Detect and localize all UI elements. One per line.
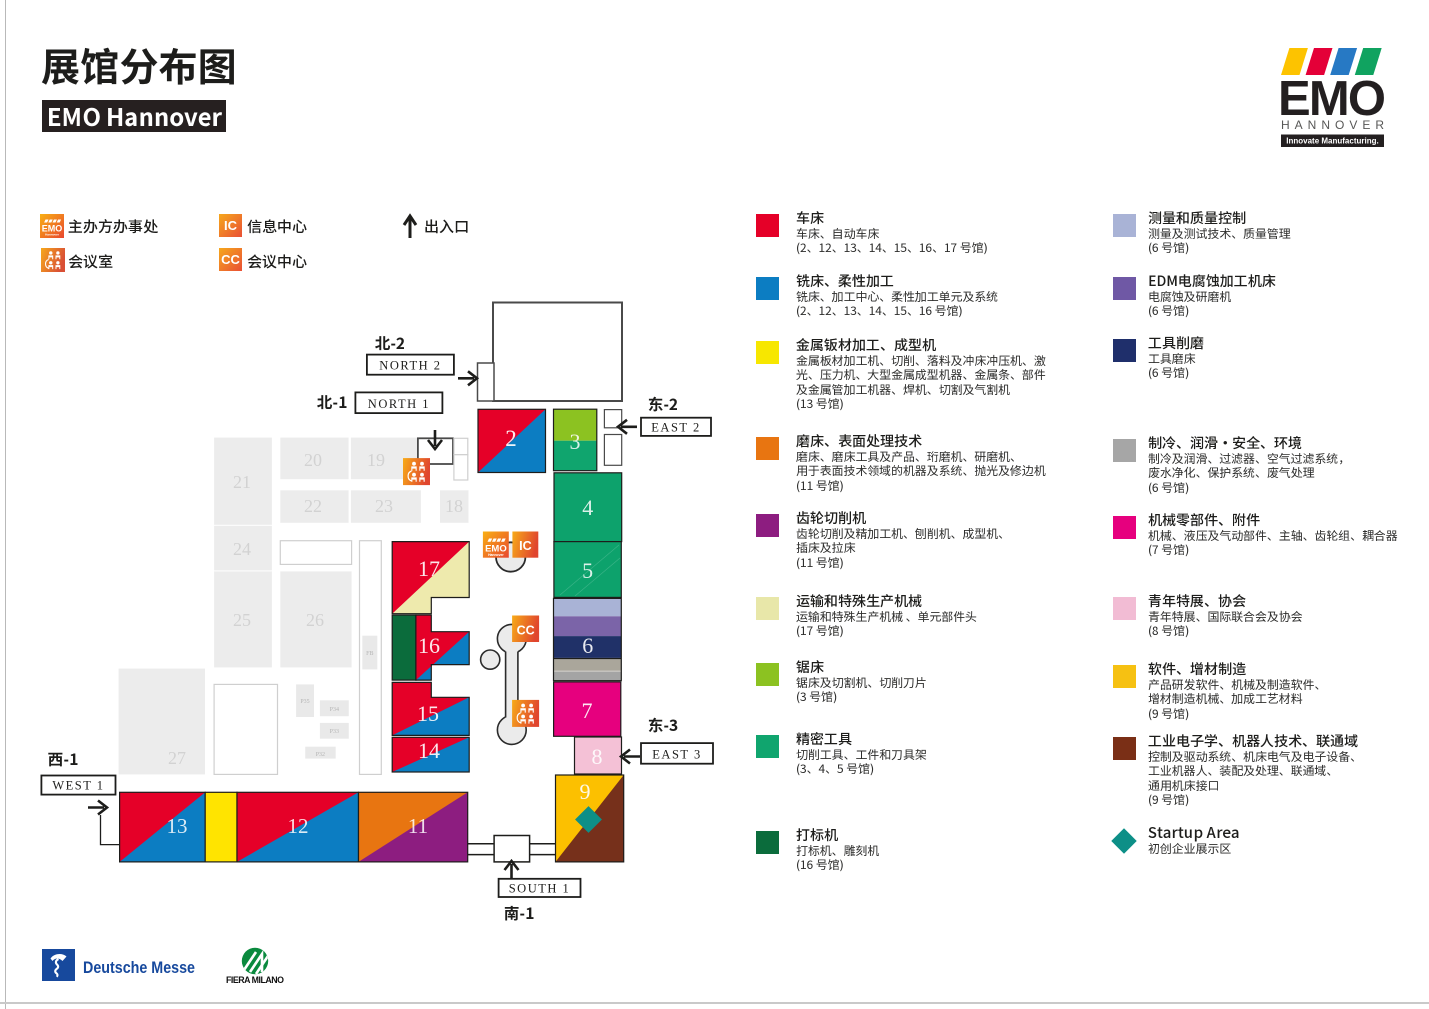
svg-text:5: 5 <box>582 558 593 583</box>
svg-text:WEST 1: WEST 1 <box>52 779 104 793</box>
svg-text:17: 17 <box>418 556 440 581</box>
svg-text:IC: IC <box>519 539 532 553</box>
svg-text:12: 12 <box>288 814 309 838</box>
svg-text:27: 27 <box>168 748 186 768</box>
svg-text:P35: P35 <box>300 699 309 705</box>
svg-text:NORTH 1: NORTH 1 <box>368 397 430 411</box>
svg-text:15: 15 <box>417 701 439 726</box>
svg-text:SOUTH 1: SOUTH 1 <box>509 882 571 896</box>
svg-text:19: 19 <box>367 450 385 470</box>
svg-text:北-1: 北-1 <box>317 391 347 413</box>
svg-text:西-1: 西-1 <box>48 748 78 770</box>
svg-text:3: 3 <box>570 429 581 454</box>
svg-text:2: 2 <box>505 426 517 451</box>
svg-text:南-1: 南-1 <box>504 902 534 924</box>
svg-text:11: 11 <box>408 814 428 838</box>
svg-text:21: 21 <box>233 472 251 492</box>
svg-text:9: 9 <box>580 779 591 804</box>
svg-text:P33: P33 <box>330 729 339 735</box>
svg-text:东-2: 东-2 <box>648 393 678 415</box>
svg-text:25: 25 <box>233 610 251 630</box>
svg-text:4: 4 <box>582 495 593 520</box>
svg-text:东-3: 东-3 <box>648 714 678 736</box>
svg-text:NORTH 2: NORTH 2 <box>379 359 441 373</box>
svg-text:FIERA MILANO: FIERA MILANO <box>226 975 284 985</box>
svg-text:CC: CC <box>517 624 535 638</box>
svg-text:6: 6 <box>582 633 593 658</box>
svg-text:18: 18 <box>445 496 463 516</box>
svg-text:8: 8 <box>592 744 603 769</box>
svg-text:20: 20 <box>304 450 322 470</box>
svg-text:26: 26 <box>306 610 324 630</box>
svg-text:Hannover: Hannover <box>488 553 504 557</box>
svg-text:24: 24 <box>233 539 251 559</box>
svg-text:EAST 3: EAST 3 <box>652 747 701 761</box>
svg-text:FB: FB <box>366 651 373 657</box>
svg-text:P32: P32 <box>316 752 325 758</box>
svg-text:13: 13 <box>167 814 188 838</box>
svg-text:23: 23 <box>375 496 393 516</box>
svg-text:7: 7 <box>582 698 593 723</box>
svg-text:EAST 2: EAST 2 <box>651 421 700 435</box>
svg-text:Deutsche Messe: Deutsche Messe <box>83 959 195 977</box>
svg-text:P34: P34 <box>330 707 339 713</box>
svg-text:14: 14 <box>418 738 440 763</box>
svg-text:22: 22 <box>304 496 322 516</box>
svg-text:16: 16 <box>418 633 440 658</box>
svg-text:北-2: 北-2 <box>375 332 405 354</box>
